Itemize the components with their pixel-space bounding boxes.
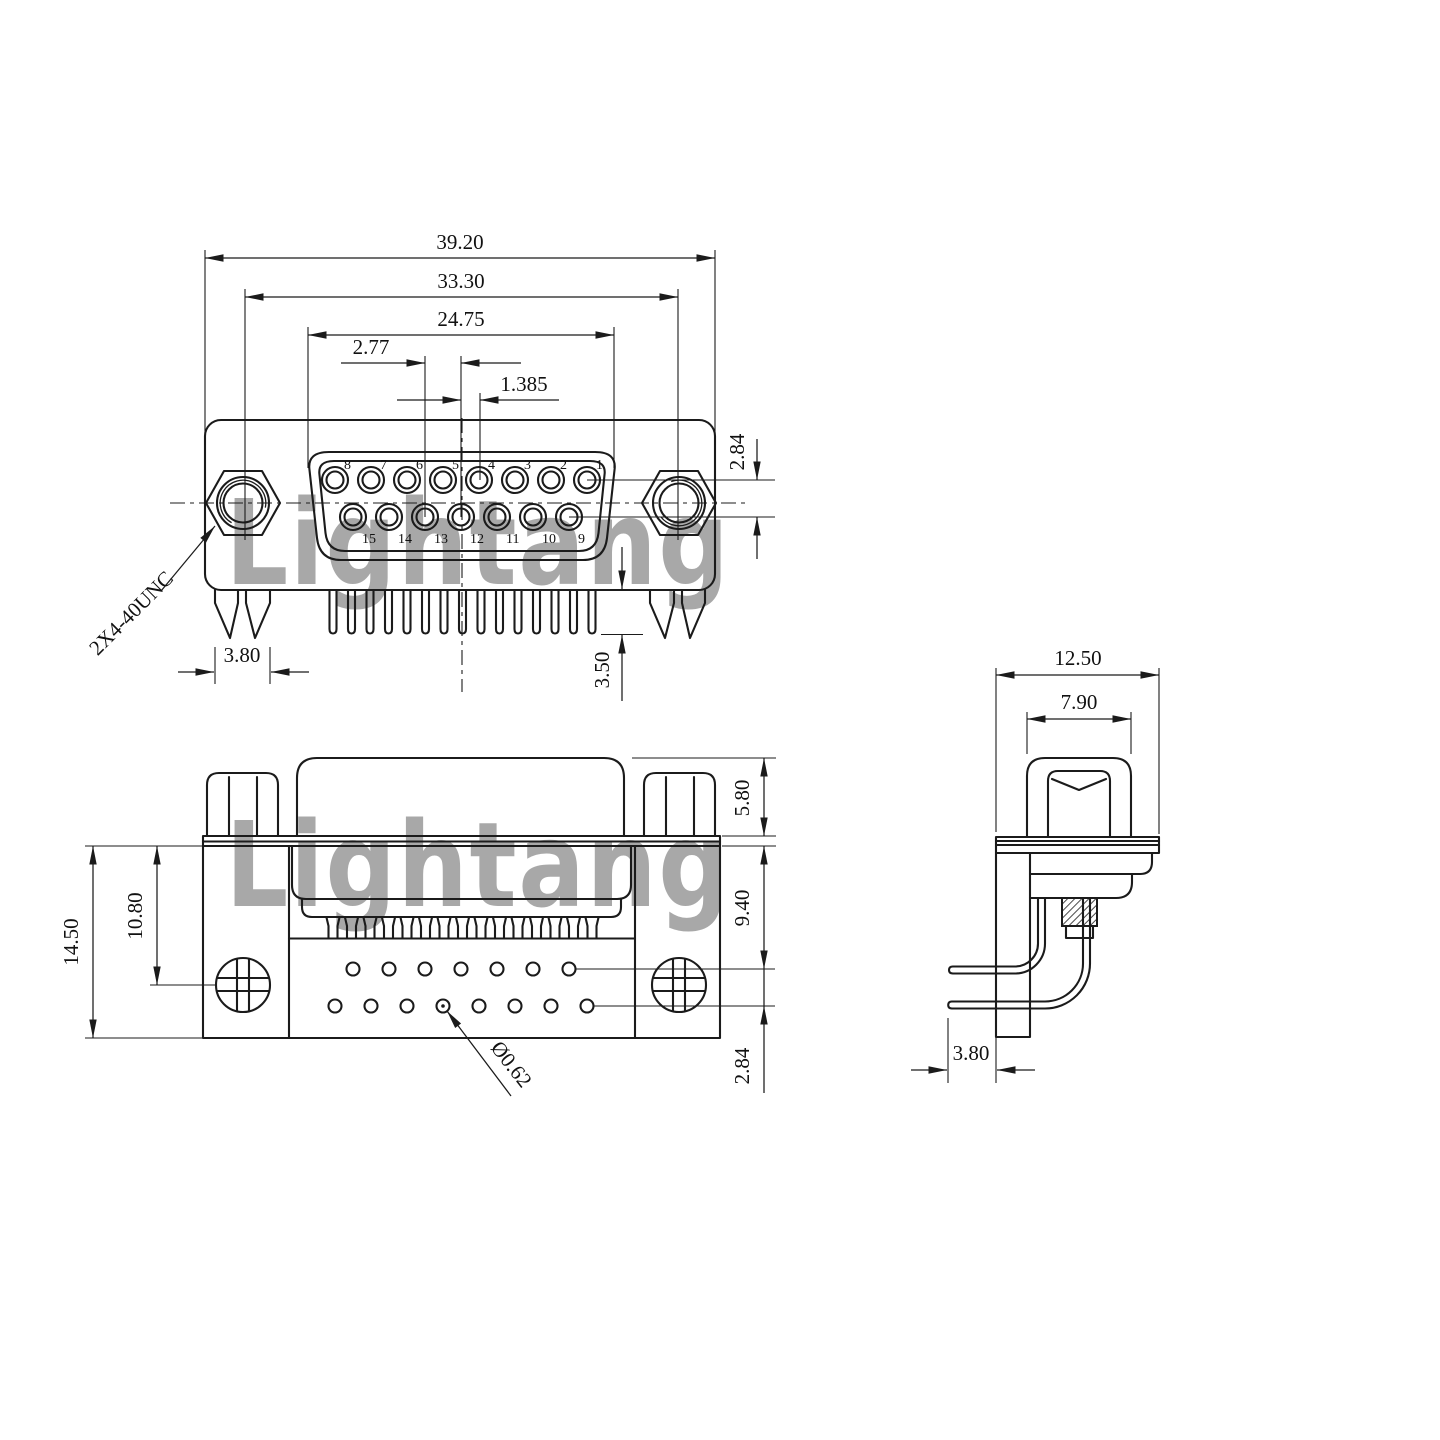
dim-mount-hole-spacing: 33.30 (437, 269, 484, 293)
pcb-hole (419, 963, 432, 976)
pin-number: 12 (470, 532, 484, 547)
pin-number: 5 (452, 458, 459, 473)
dim-row-stagger: 1.385 (500, 372, 547, 396)
dim-screw-head-width: 7.90 (1061, 690, 1098, 714)
pin-number: 15 (362, 532, 376, 547)
dim-hole-row-spacing: 2.84 (730, 1047, 754, 1084)
pcb-hole (383, 963, 396, 976)
dim-overall-depth: 12.50 (1054, 646, 1101, 670)
dim-shell-width: 24.75 (437, 307, 484, 331)
pcb-hole (491, 963, 504, 976)
pin-number: 14 (398, 532, 412, 547)
pin-number: 3 (524, 458, 531, 473)
pcb-hole (545, 1000, 558, 1013)
dim-insulator-height: 9.40 (730, 890, 754, 927)
dim-leg-width: 3.80 (224, 643, 261, 667)
pin-number: 4 (488, 458, 495, 473)
pin-number: 13 (434, 532, 448, 547)
dim-overall-width: 39.20 (436, 230, 483, 254)
side-view-dimensions: 12.50 7.90 3.80 (911, 646, 1159, 1083)
pcb-hole (401, 1000, 414, 1013)
dim-tail-length: 3.50 (590, 652, 614, 689)
pcb-hole (473, 1000, 486, 1013)
pin-number: 7 (380, 458, 387, 473)
pcb-hole (563, 963, 576, 976)
pcb-hole (581, 1000, 594, 1013)
hole-diameter-callout: Ø0.62 (486, 1036, 537, 1092)
right-screw (652, 958, 706, 1012)
pcb-hole (455, 963, 468, 976)
pin-number: 9 (578, 532, 585, 547)
hole-center-mark (441, 1004, 445, 1008)
pcb-hole (509, 1000, 522, 1013)
side-jackscrew-outer (1027, 758, 1131, 837)
pcb-holes (329, 963, 594, 1013)
dim-contact-pitch: 2.77 (353, 335, 390, 359)
technical-drawing-page: Lightang Lightang 876543211514131211109 (0, 0, 1440, 1440)
dim-row-spacing: 2.84 (725, 433, 749, 470)
pin-number: 1 (596, 458, 603, 473)
pcb-hole (329, 1000, 342, 1013)
front-view: 876543211514131211109 39.20 33.30 24.75 (84, 230, 775, 701)
dim-body-height: 14.50 (59, 918, 83, 965)
watermark-text-bottom: Lightang (226, 796, 731, 934)
pin-number: 10 (542, 532, 556, 547)
pin-number: 6 (416, 458, 423, 473)
pcb-hole (527, 963, 540, 976)
thread-callout: 2X4-40UNC (84, 566, 178, 660)
side-view: 12.50 7.90 3.80 (911, 646, 1159, 1083)
pcb-hole (365, 1000, 378, 1013)
pin-number: 8 (344, 458, 351, 473)
threaded-insert (1062, 898, 1097, 926)
dim-pin-protrusion: 3.80 (953, 1041, 990, 1065)
pin-number: 2 (560, 458, 567, 473)
pin-number: 11 (506, 532, 519, 547)
dsub-connector-drawing: Lightang Lightang 876543211514131211109 (0, 0, 1440, 1440)
dim-screw-center-height: 10.80 (123, 892, 147, 939)
left-screw (216, 958, 270, 1012)
pcb-hole (347, 963, 360, 976)
dim-screw-boss-height: 5.80 (730, 780, 754, 817)
